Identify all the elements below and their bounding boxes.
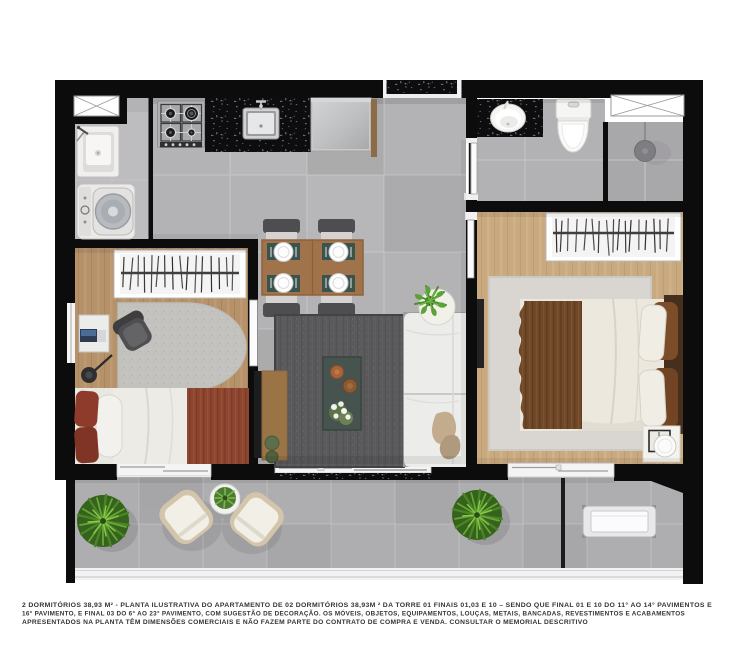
- svg-text:16° PAVIMENTO, E FINAL 03 DO 6: 16° PAVIMENTO, E FINAL 03 DO 6° AO 23° P…: [22, 610, 685, 618]
- svg-text:APRESENTADOS NA PLANTA TÊM DIM: APRESENTADOS NA PLANTA TÊM DIMENSÕES COM…: [22, 618, 588, 626]
- svg-text:2 DORMITÓRIOS 38,93 M² - PLANT: 2 DORMITÓRIOS 38,93 M² - PLANTA ILUSTRAT…: [22, 601, 712, 609]
